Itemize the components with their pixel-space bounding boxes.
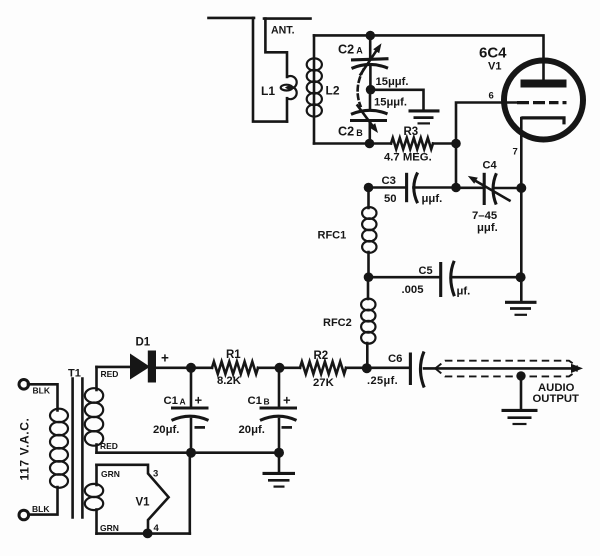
svg-text:4: 4 [154,523,160,534]
svg-text:20μf.: 20μf. [153,424,179,436]
svg-text:B: B [264,397,270,407]
svg-text:D1: D1 [136,337,151,349]
svg-text:4.7 MEG.: 4.7 MEG. [384,151,432,163]
svg-text:.25μf.: .25μf. [367,375,398,387]
svg-text:7: 7 [513,146,518,157]
svg-text:.005: .005 [402,284,424,296]
svg-text:RED: RED [101,369,119,379]
svg-text:C5: C5 [419,265,433,277]
svg-text:BLK: BLK [33,386,51,396]
svg-text:RFC2: RFC2 [323,317,352,329]
svg-text:R3: R3 [404,126,419,138]
svg-text:T1: T1 [68,368,81,380]
svg-text:L2: L2 [326,84,340,98]
svg-text:27K: 27K [313,377,335,389]
svg-text:ANT.: ANT. [271,25,295,37]
svg-text:7–45: 7–45 [472,210,497,222]
svg-text:C1: C1 [164,395,178,407]
svg-text:R1: R1 [226,349,241,361]
svg-text:C2: C2 [338,42,354,56]
svg-text:20μf.: 20μf. [239,424,265,436]
svg-text:R2: R2 [314,350,329,362]
svg-text:C2: C2 [338,125,354,139]
svg-text:C3: C3 [382,175,396,187]
svg-text:V1: V1 [488,60,501,72]
svg-text:RFC1: RFC1 [318,230,347,242]
svg-text:A: A [180,397,186,407]
svg-text:A: A [356,46,363,56]
svg-text:GRN: GRN [100,523,119,533]
svg-text:C4: C4 [483,159,498,171]
svg-text:B: B [356,128,363,138]
svg-text:GRN: GRN [101,469,120,479]
svg-text:L1: L1 [261,84,275,98]
svg-text:V1: V1 [136,497,151,509]
svg-text:15μμf.: 15μμf. [374,96,407,108]
svg-text:15μμf.: 15μμf. [376,76,409,88]
svg-text:+: + [161,351,169,366]
svg-text:RED: RED [100,441,118,451]
svg-text:+: + [283,392,291,407]
svg-text:C6: C6 [388,353,402,365]
svg-text:+: + [195,392,203,407]
svg-text:6C4: 6C4 [479,45,507,62]
svg-text:μf.: μf. [457,285,471,297]
svg-text:3: 3 [153,468,158,479]
svg-text:μμf.: μμf. [477,222,498,234]
svg-text:μμf.: μμf. [422,193,443,205]
svg-text:6: 6 [489,91,494,102]
svg-text:50: 50 [384,193,397,205]
svg-text:8.2K: 8.2K [217,375,242,387]
svg-text:OUTPUT: OUTPUT [533,393,580,405]
svg-text:BLK: BLK [32,504,50,514]
svg-text:C1: C1 [248,395,262,407]
svg-text:117 V.A.C.: 117 V.A.C. [18,418,32,481]
